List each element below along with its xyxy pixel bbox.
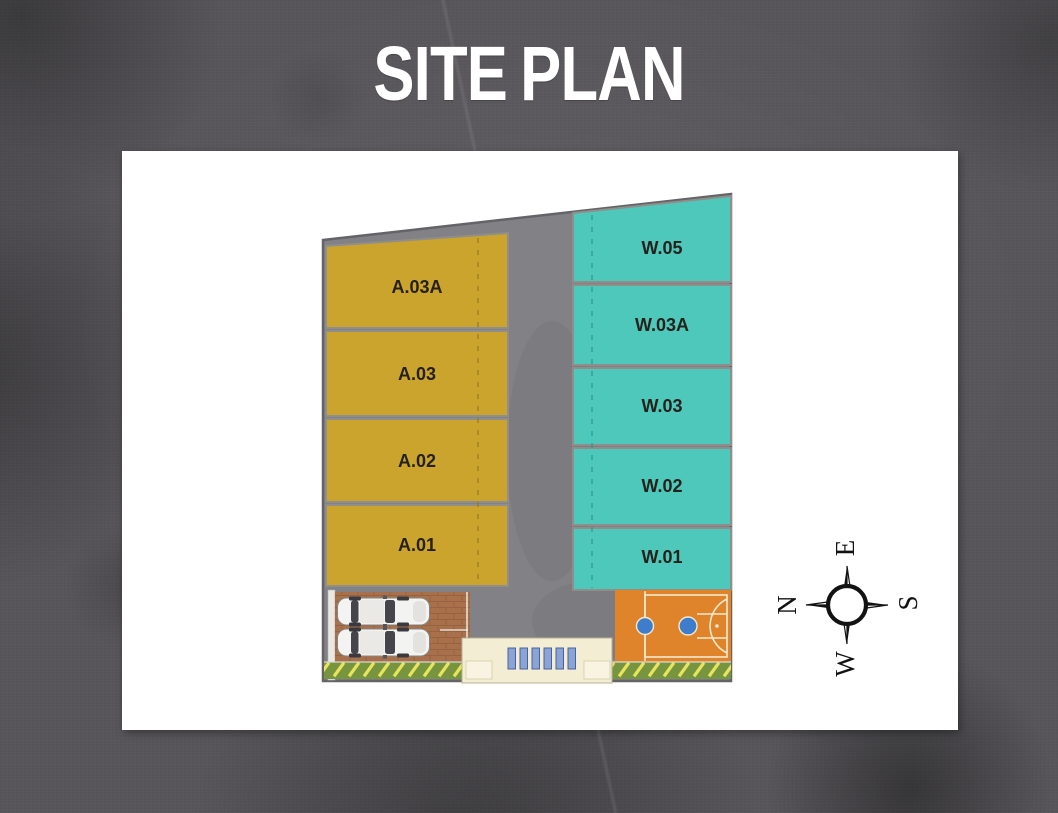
entrance-pillar-left: [466, 661, 492, 679]
entrance-gate: [462, 638, 612, 683]
site-plan-canvas: A.03A A.03 A.02 A.01 W.05 W.03A W.03 W.0…: [122, 151, 958, 730]
grass-hatch-left: [324, 662, 462, 679]
block-label-a03: A.03: [398, 364, 436, 384]
gate-bar: [556, 648, 564, 669]
block-label-w02: W.02: [641, 476, 682, 496]
block-label-w05: W.05: [641, 238, 682, 258]
block-label-a01: A.01: [398, 535, 436, 555]
gate-bar: [532, 648, 540, 669]
basketball-court: [615, 590, 731, 662]
court-surface: [615, 590, 731, 662]
block-label-a02: A.02: [398, 451, 436, 471]
compass-hub: [828, 586, 866, 624]
car-icon: [338, 627, 430, 659]
gate-bar: [568, 648, 576, 669]
block-label-w01: W.01: [641, 547, 682, 567]
block-label-a03a: A.03A: [391, 277, 442, 297]
compass-label-south: S: [893, 595, 923, 610]
car-icon: [338, 596, 430, 628]
compass-label-north: N: [772, 595, 802, 615]
block-label-w03: W.03: [641, 396, 682, 416]
gate-bar: [520, 648, 528, 669]
block-column-w: W.05 W.03A W.03 W.02 W.01: [573, 196, 731, 590]
compass-label-west: W: [830, 651, 860, 677]
court-hoop-dot: [715, 624, 719, 628]
block-column-a: A.03A A.03 A.02 A.01: [326, 233, 508, 586]
grass-hatch-right: [612, 662, 731, 679]
compass-rose: E N S W: [772, 540, 923, 677]
gate-bar: [508, 648, 516, 669]
gate-bar: [544, 648, 552, 669]
court-key-circle: [679, 617, 697, 635]
entrance-pillar-right: [584, 661, 610, 679]
site-plan-card: A.03A A.03 A.02 A.01 W.05 W.03A W.03 W.0…: [122, 151, 958, 730]
slide-background: SITE PLAN: [0, 0, 1058, 813]
court-center-circle: [637, 618, 654, 635]
block-label-w03a: W.03A: [635, 315, 689, 335]
compass-label-east: E: [830, 540, 860, 557]
page-title: SITE PLAN: [106, 36, 952, 113]
